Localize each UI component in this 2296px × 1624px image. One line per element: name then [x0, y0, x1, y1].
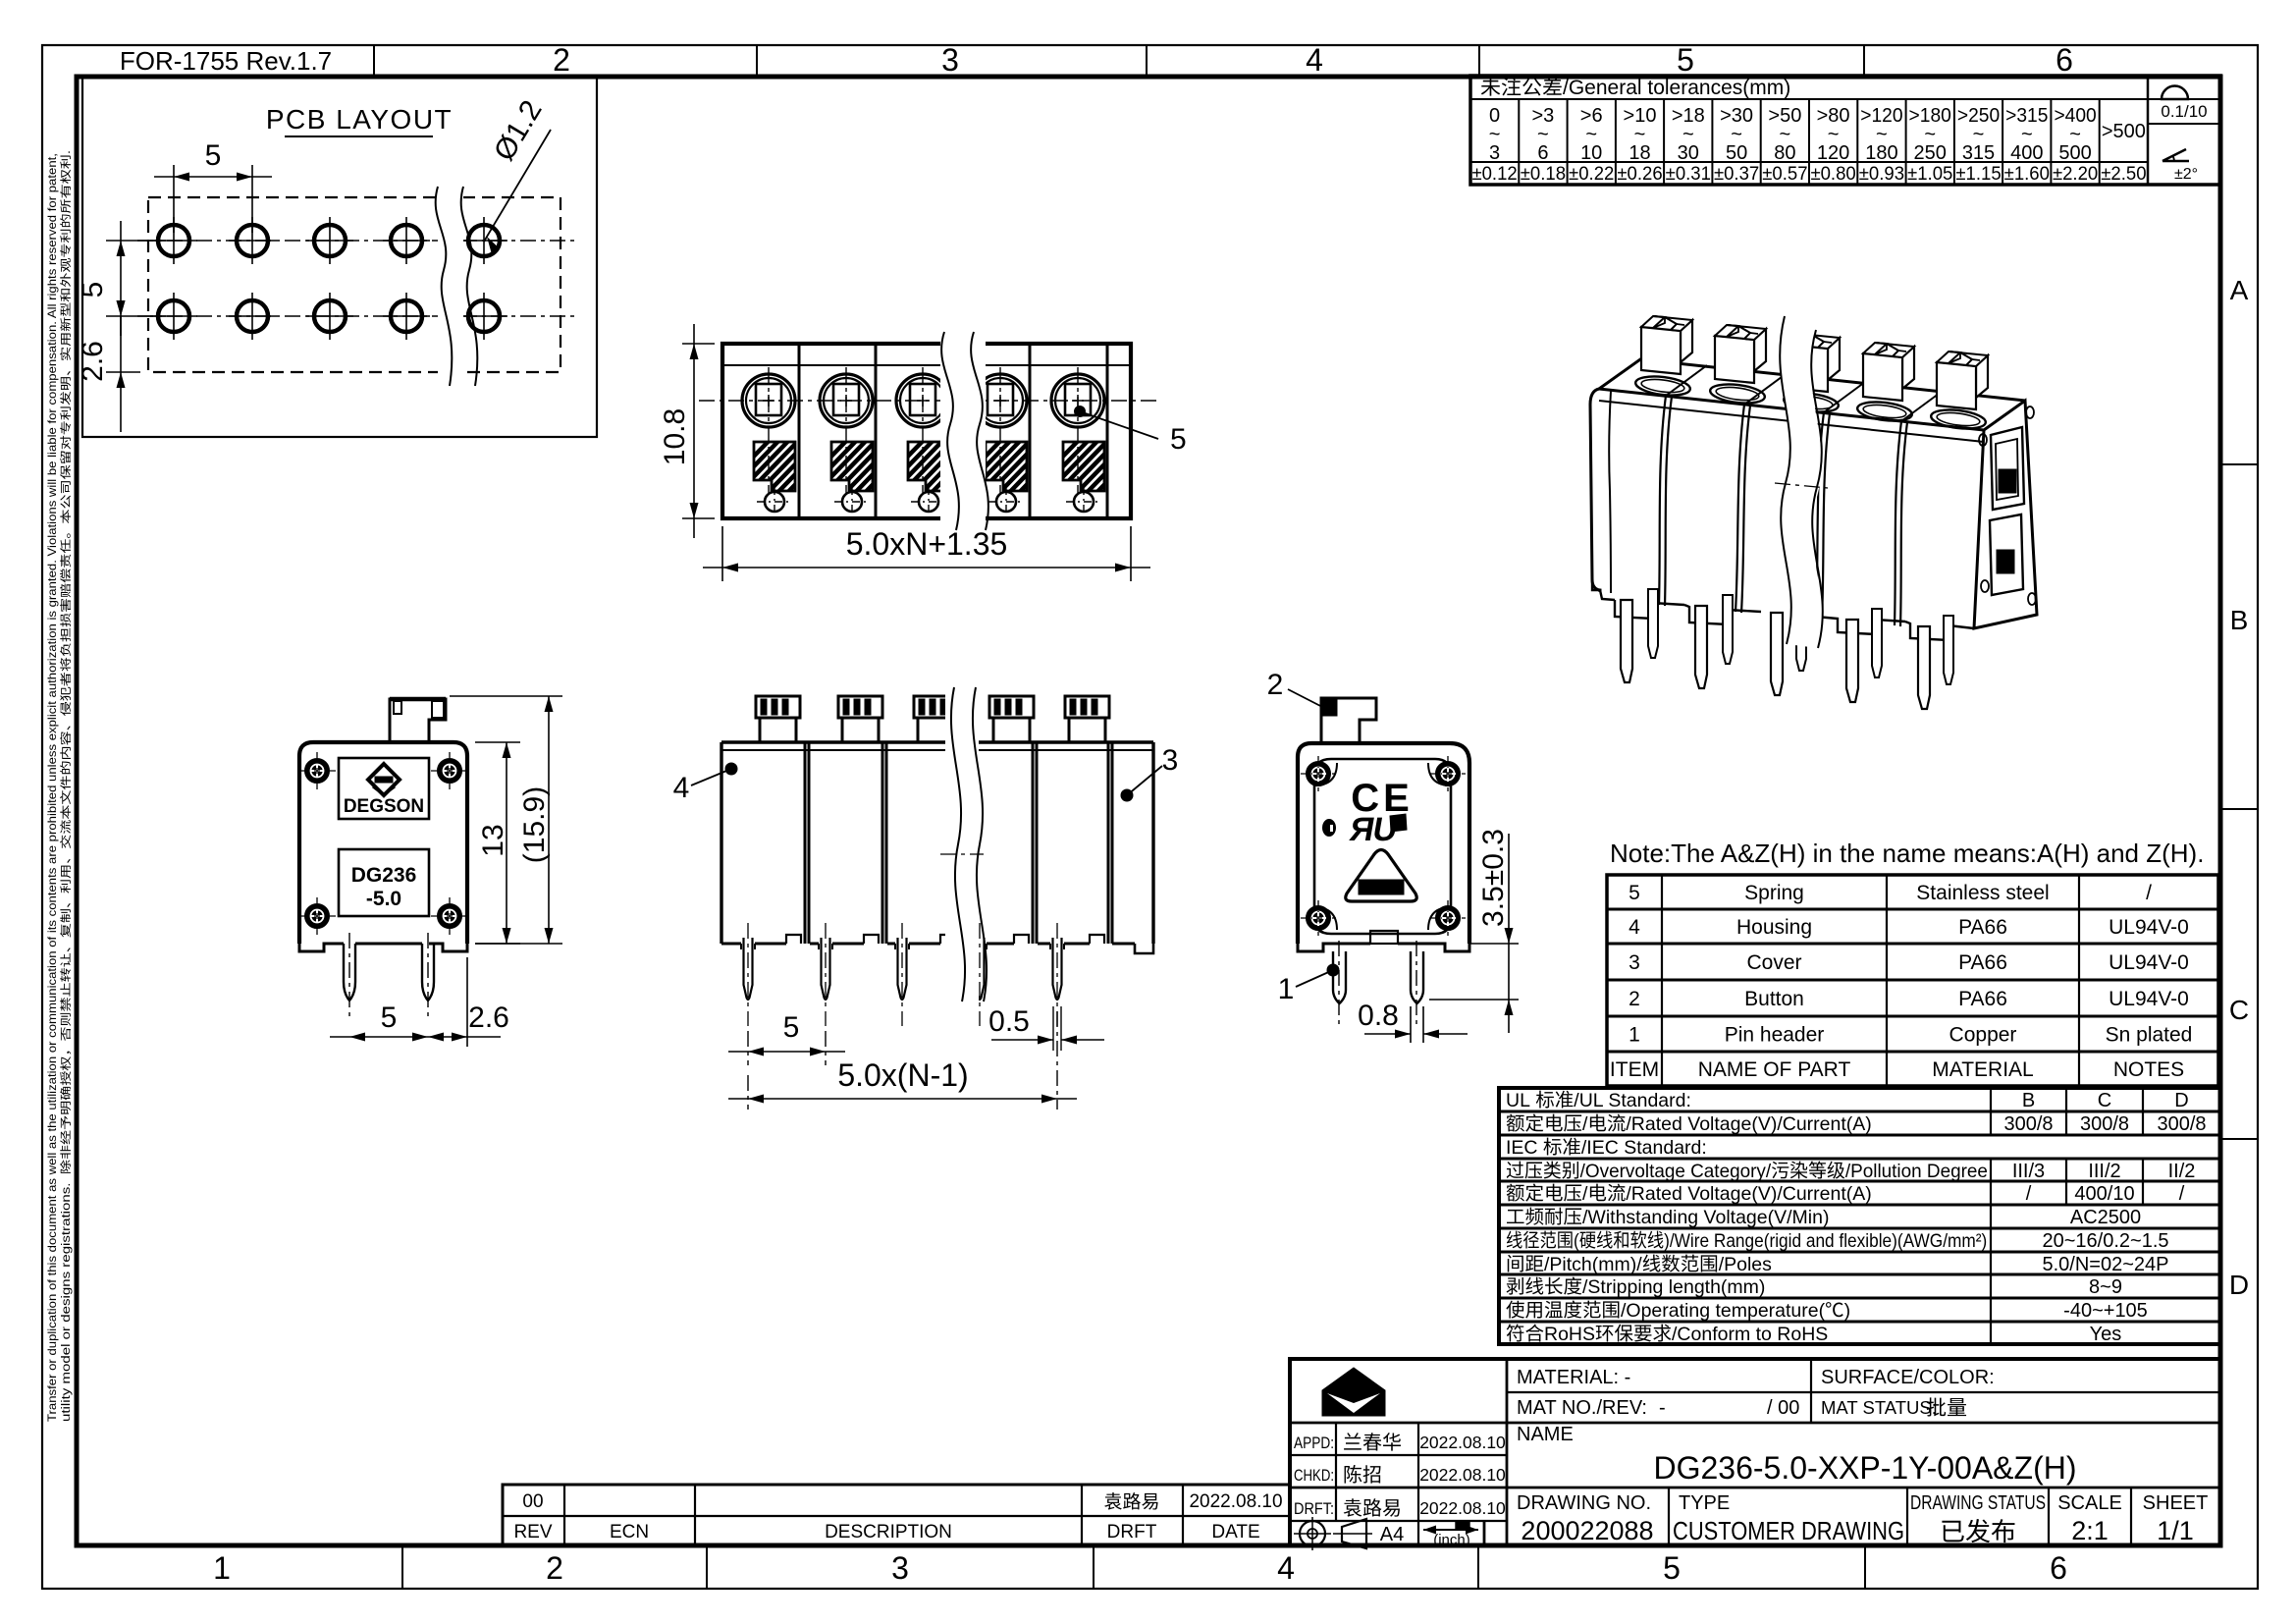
svg-text:/Pollution Degree: /Pollution Degree	[1845, 1162, 1988, 1182]
svg-text:A4: A4	[1380, 1524, 1404, 1545]
svg-text:DRFT: DRFT	[1107, 1522, 1157, 1543]
svg-text:SURFACE/COLOR:: SURFACE/COLOR:	[1821, 1367, 1995, 1388]
svg-text:2: 2	[546, 1550, 563, 1586]
svg-text:120: 120	[1817, 142, 1849, 164]
svg-text:±0.26: ±0.26	[1617, 164, 1662, 185]
svg-text:0.8: 0.8	[1358, 1000, 1399, 1032]
svg-text:±0.57: ±0.57	[1762, 164, 1807, 185]
svg-text:UL: UL	[1506, 1090, 1530, 1111]
svg-text:MAT NO./REV:: MAT NO./REV:	[1517, 1397, 1647, 1419]
svg-text:NAME: NAME	[1517, 1424, 1574, 1445]
svg-text:UL94V-0: UL94V-0	[2109, 916, 2189, 939]
svg-text:2: 2	[1629, 988, 1640, 1010]
svg-text:2: 2	[553, 42, 570, 78]
svg-text:2022.08.10: 2022.08.10	[1419, 1433, 1506, 1452]
svg-text:10.8: 10.8	[659, 408, 691, 465]
svg-text:10: 10	[1580, 142, 1602, 164]
svg-text:DEGSON: DEGSON	[344, 796, 424, 817]
svg-text:0.1/10: 0.1/10	[2161, 102, 2207, 121]
svg-text:(inch): (inch)	[1433, 1532, 1470, 1548]
svg-text:300/8: 300/8	[2080, 1113, 2129, 1135]
svg-text:(: (	[1574, 1229, 1580, 1251]
svg-text:DATE: DATE	[1211, 1522, 1259, 1543]
svg-text:2:1: 2:1	[2071, 1516, 2109, 1545]
svg-text:20~16/0.2~1.5: 20~16/0.2~1.5	[2042, 1230, 2168, 1252]
svg-text:±2°: ±2°	[2174, 166, 2198, 183]
svg-text:Housing: Housing	[1736, 916, 1812, 939]
svg-text:300/8: 300/8	[2003, 1113, 2053, 1135]
svg-text:Yes: Yes	[2090, 1324, 2122, 1345]
svg-text:VDE: VDE	[1367, 880, 1396, 895]
svg-text:315: 315	[1962, 142, 1995, 164]
svg-text:5.0/N=02~24P: 5.0/N=02~24P	[2043, 1254, 2169, 1275]
svg-text:2: 2	[1267, 669, 1284, 701]
svg-text:8~9: 8~9	[2089, 1276, 2122, 1298]
svg-text:3: 3	[1162, 744, 1179, 777]
svg-text:±0.12: ±0.12	[1471, 164, 1517, 185]
svg-text:/Withstanding Voltage(V/Min): /Withstanding Voltage(V/Min)	[1582, 1207, 1829, 1228]
svg-text:DG236-5.0-XXP-1Y-00A&Z(H): DG236-5.0-XXP-1Y-00A&Z(H)	[1654, 1450, 2077, 1486]
svg-text:3: 3	[1629, 951, 1640, 974]
svg-text:NAME OF PART: NAME OF PART	[1698, 1058, 1851, 1081]
svg-text:/: /	[2179, 1183, 2185, 1205]
svg-text:AC2500: AC2500	[2070, 1207, 2141, 1228]
svg-text:0.5: 0.5	[988, 1005, 1030, 1038]
svg-text:DG236: DG236	[351, 864, 417, 887]
svg-text:±1.05: ±1.05	[1907, 164, 1952, 185]
svg-text:TYPE: TYPE	[1679, 1492, 1730, 1514]
svg-text:Pin header: Pin header	[1725, 1024, 1825, 1047]
svg-text:±0.80: ±0.80	[1810, 164, 1855, 185]
svg-text:SHEET: SHEET	[2143, 1492, 2209, 1514]
svg-text:APPD:: APPD:	[1294, 1434, 1334, 1452]
svg-text:UL94V-0: UL94V-0	[2109, 988, 2189, 1010]
svg-text:B: B	[2022, 1090, 2035, 1111]
svg-text:6: 6	[1537, 142, 1548, 164]
svg-text:2022.08.10: 2022.08.10	[1419, 1498, 1506, 1518]
svg-text:-40~+105: -40~+105	[2063, 1300, 2148, 1322]
svg-text:/Poles: /Poles	[1719, 1254, 1772, 1275]
svg-text:3.5±0.3: 3.5±0.3	[1477, 829, 1510, 927]
svg-text:80: 80	[1774, 142, 1795, 164]
svg-text:250: 250	[1914, 142, 1947, 164]
svg-text:-5.0: -5.0	[366, 888, 401, 910]
svg-text:6: 6	[2050, 1550, 2067, 1586]
svg-text:/ 00: / 00	[1767, 1397, 1799, 1419]
svg-text:/Stripping length(mm): /Stripping length(mm)	[1582, 1276, 1765, 1298]
svg-text:4: 4	[1629, 916, 1640, 939]
svg-text:PA66: PA66	[1958, 916, 2007, 939]
svg-text:5: 5	[1677, 42, 1694, 78]
svg-text:400/10: 400/10	[2074, 1183, 2134, 1205]
svg-text:PCB LAYOUT: PCB LAYOUT	[266, 104, 453, 135]
svg-text:50: 50	[1726, 142, 1747, 164]
svg-text:/Pitch(mm)/: /Pitch(mm)/	[1544, 1254, 1642, 1275]
svg-text:1: 1	[1278, 973, 1295, 1005]
svg-text:4: 4	[1306, 42, 1323, 78]
svg-text:/IEC Standard:: /IEC Standard:	[1581, 1137, 1707, 1159]
svg-text:Transfer or duplication of thi: Transfer or duplication of this document…	[46, 153, 59, 1422]
svg-text:MATERIAL: -: MATERIAL: -	[1517, 1367, 1630, 1388]
svg-text:-: -	[1659, 1397, 1666, 1419]
svg-text:Stainless steel: Stainless steel	[1916, 882, 2049, 904]
svg-text:5: 5	[783, 1011, 800, 1044]
svg-text:RoHS: RoHS	[1544, 1324, 1595, 1345]
svg-text:UL94V-0: UL94V-0	[2109, 951, 2189, 974]
svg-text:±0.31: ±0.31	[1666, 164, 1711, 185]
svg-text:3: 3	[1489, 142, 1500, 164]
svg-text:NOTES: NOTES	[2113, 1058, 2184, 1081]
svg-text:Copper: Copper	[1949, 1024, 2017, 1047]
svg-text:3: 3	[941, 42, 959, 78]
svg-text:5.0xN+1.35: 5.0xN+1.35	[846, 526, 1008, 562]
svg-text:): )	[1844, 1300, 1851, 1322]
svg-text:ECN: ECN	[610, 1522, 649, 1543]
svg-text:CHKD:: CHKD:	[1294, 1466, 1334, 1485]
svg-text:5: 5	[1663, 1550, 1681, 1586]
svg-text:/: /	[2026, 1183, 2032, 1205]
svg-text:2.6: 2.6	[468, 1001, 509, 1034]
svg-text:5.0x(N-1): 5.0x(N-1)	[837, 1057, 968, 1093]
svg-text:/Rated Voltage(V)/Current(A): /Rated Voltage(V)/Current(A)	[1626, 1183, 1871, 1205]
svg-text:DRFT:: DRFT:	[1294, 1499, 1334, 1518]
svg-text:1/1: 1/1	[2157, 1516, 2194, 1545]
svg-text:DRAWING NO.: DRAWING NO.	[1517, 1492, 1651, 1514]
svg-text:00: 00	[522, 1491, 543, 1512]
svg-text:)/Wire Range(rigid and flexibl: )/Wire Range(rigid and flexible)(AWG/mm²…	[1664, 1229, 1987, 1251]
svg-text:4: 4	[673, 772, 690, 804]
svg-text:3: 3	[891, 1550, 909, 1586]
svg-text:±0.22: ±0.22	[1569, 164, 1614, 185]
svg-text:±1.60: ±1.60	[2004, 164, 2050, 185]
svg-text:Spring: Spring	[1744, 882, 1804, 904]
svg-text:ITEM: ITEM	[1610, 1058, 1659, 1081]
svg-text:5: 5	[1629, 882, 1640, 904]
svg-text:utility model or designs regis: utility model or designs registrations.	[60, 1183, 73, 1422]
svg-text:Cover: Cover	[1746, 951, 1801, 974]
svg-text:/Rated Voltage(V)/Current(A): /Rated Voltage(V)/Current(A)	[1626, 1113, 1871, 1135]
svg-text:/Conform to RoHS: /Conform to RoHS	[1672, 1324, 1828, 1345]
svg-text:200022088: 200022088	[1521, 1516, 1653, 1545]
svg-text:±0.37: ±0.37	[1714, 164, 1759, 185]
svg-text:MATERIAL: MATERIAL	[1932, 1058, 2033, 1081]
svg-text:D: D	[2174, 1090, 2188, 1111]
svg-text:DRAWING STATUS: DRAWING STATUS	[1910, 1492, 2046, 1514]
svg-text:4: 4	[1277, 1550, 1295, 1586]
svg-text:18: 18	[1629, 142, 1650, 164]
svg-text:>500: >500	[2102, 121, 2146, 142]
svg-text:.: .	[60, 150, 73, 154]
svg-text:±2.50: ±2.50	[2101, 164, 2146, 185]
svg-text:±0.18: ±0.18	[1521, 164, 1566, 185]
svg-text:/: /	[1582, 1113, 1588, 1135]
svg-text:/: /	[1582, 1183, 1588, 1205]
svg-text:IEC: IEC	[1506, 1137, 1538, 1159]
svg-text:Button: Button	[1744, 988, 1804, 1010]
svg-text:13: 13	[477, 824, 509, 856]
svg-text:/Overvoltage Category/: /Overvoltage Category/	[1580, 1162, 1772, 1182]
svg-text:SCALE: SCALE	[2057, 1492, 2122, 1514]
svg-text:5: 5	[77, 282, 109, 298]
svg-text:180: 180	[1865, 142, 1897, 164]
svg-text:±0.93: ±0.93	[1859, 164, 1904, 185]
svg-text:30: 30	[1678, 142, 1699, 164]
svg-text:C: C	[2229, 995, 2249, 1025]
svg-text:1: 1	[213, 1550, 231, 1586]
svg-text:MAT STATUS:: MAT STATUS:	[1821, 1397, 1937, 1418]
svg-text:C: C	[2098, 1090, 2111, 1111]
svg-text:A: A	[2230, 275, 2249, 305]
svg-text:PA66: PA66	[1958, 988, 2007, 1010]
svg-text:±1.15: ±1.15	[1955, 164, 2001, 185]
svg-text:/General tolerances(mm): /General tolerances(mm)	[1563, 77, 1790, 99]
svg-text:Sn plated: Sn plated	[2106, 1024, 2193, 1047]
svg-text:III/3: III/3	[2012, 1161, 2045, 1182]
svg-text:FOR-1755 Rev.1.7: FOR-1755 Rev.1.7	[120, 46, 332, 76]
svg-text:D: D	[2229, 1270, 2249, 1300]
svg-text:5: 5	[381, 1001, 398, 1034]
svg-text:DESCRIPTION: DESCRIPTION	[825, 1522, 952, 1543]
svg-text:B: B	[2230, 605, 2249, 635]
svg-text:/Operating temperature(: /Operating temperature(	[1621, 1300, 1826, 1322]
svg-text:Ø1.2: Ø1.2	[488, 95, 549, 167]
svg-text:/: /	[2146, 882, 2152, 904]
svg-text:2022.08.10: 2022.08.10	[1189, 1491, 1282, 1512]
svg-text:1: 1	[1629, 1024, 1640, 1047]
svg-text:(15.9): (15.9)	[518, 786, 551, 863]
svg-text:5: 5	[1170, 423, 1187, 456]
svg-text:2.6: 2.6	[77, 341, 109, 382]
svg-text:±2.20: ±2.20	[2053, 164, 2098, 185]
svg-text:400: 400	[2010, 142, 2043, 164]
svg-text:2022.08.10: 2022.08.10	[1419, 1465, 1506, 1485]
svg-text:Note:The A&Z(H) in the name me: Note:The A&Z(H) in the name means:A(H) a…	[1610, 839, 2204, 868]
svg-text:II/2: II/2	[2168, 1161, 2196, 1182]
svg-text:300/8: 300/8	[2157, 1113, 2206, 1135]
svg-text:III/2: III/2	[2088, 1161, 2120, 1182]
svg-text:500: 500	[2058, 142, 2091, 164]
svg-text:PA66: PA66	[1958, 951, 2007, 974]
svg-text:5: 5	[205, 139, 222, 172]
svg-text:REV: REV	[513, 1522, 552, 1543]
svg-text:CUSTOMER DRAWING: CUSTOMER DRAWING	[1673, 1516, 1904, 1545]
svg-text:/UL Standard:: /UL Standard:	[1574, 1090, 1691, 1111]
svg-text:6: 6	[2056, 42, 2073, 78]
